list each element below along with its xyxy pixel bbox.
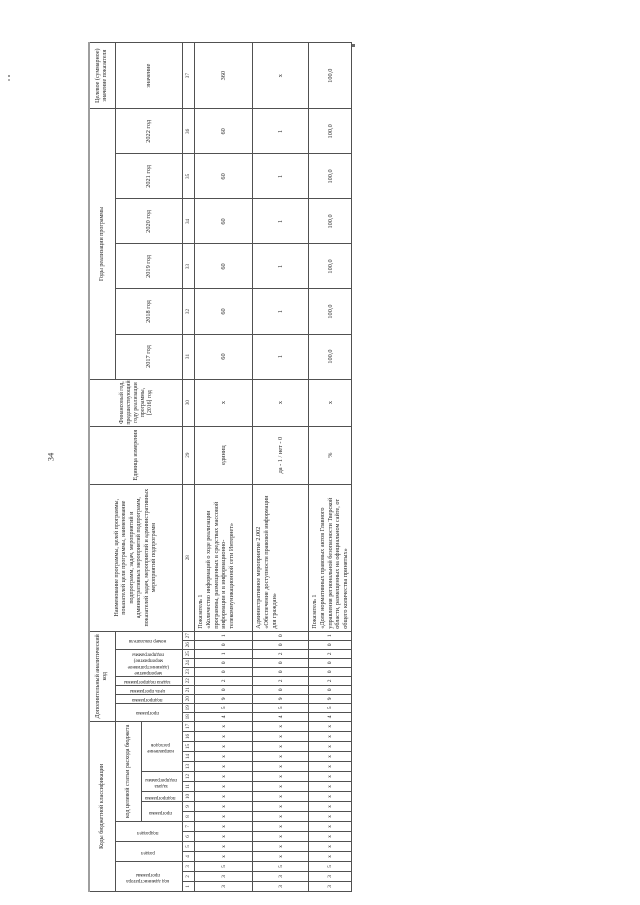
value-cell: х	[309, 742, 352, 752]
value-cell: х	[309, 721, 352, 731]
value-cell: 100,0	[309, 109, 352, 154]
header-label: Годы реализации программы	[99, 207, 105, 281]
header-ta-podprogramma: подпрограмма	[141, 792, 183, 802]
value-cell: х	[253, 852, 309, 862]
value-cell: х	[253, 812, 309, 822]
header-label: 2017 год	[145, 345, 152, 368]
column-number: 3	[183, 862, 195, 872]
value-cell: х	[195, 812, 253, 822]
value-cell: 2	[309, 676, 352, 685]
column-number: 11	[183, 782, 195, 792]
value-cell: х	[253, 379, 309, 426]
value-cell: %	[309, 426, 352, 484]
column-number: 36	[183, 109, 195, 154]
header-an-zadacha: задача подпрограммы	[115, 676, 183, 685]
value-cell: 5	[195, 703, 253, 712]
value-cell: х	[253, 802, 309, 812]
column-numbers-row: 1234567891011121314151617181920212223242…	[183, 43, 195, 892]
value-cell: 4	[309, 712, 352, 721]
column-number: 21	[183, 685, 195, 694]
column-number: 7	[183, 822, 195, 832]
column-number: 9	[183, 802, 195, 812]
value-cell: 0	[309, 640, 352, 649]
value-cell: 3	[309, 882, 352, 892]
value-cell: 360	[195, 43, 253, 109]
header-label: подпрограмма	[132, 696, 163, 702]
value-cell: 2	[195, 676, 253, 685]
value-cell: х	[309, 822, 352, 832]
column-number: 8	[183, 812, 195, 822]
header-base-year-column: Финансовый год, предшествующий году реал…	[89, 379, 183, 426]
column-number: 4	[183, 852, 195, 862]
value-cell: х	[309, 732, 352, 742]
header-an-programma: программа	[115, 703, 183, 721]
header-label: направление расходов	[142, 740, 180, 753]
table-header: Коды бюджетной классификации Дополнитель…	[89, 43, 183, 892]
column-number: 13	[183, 762, 195, 772]
value-cell: 1	[195, 631, 253, 640]
column-number: 5	[183, 842, 195, 852]
column-number: 23	[183, 667, 195, 676]
header-label: номер показателя	[129, 637, 166, 643]
value-cell: х	[309, 842, 352, 852]
table-row: 335хххххххххххххх4590200201Показатель 1 …	[309, 43, 352, 892]
value-cell: х	[253, 43, 309, 109]
header-label: Коды бюджетной классификации	[99, 764, 105, 849]
value-cell: 1	[253, 244, 309, 289]
value-cell: 0	[253, 685, 309, 694]
value-cell: 0	[253, 667, 309, 676]
value-cell: х	[253, 792, 309, 802]
column-number: 19	[183, 703, 195, 712]
value-cell: 100,0	[309, 199, 352, 244]
value-cell: 60	[195, 199, 253, 244]
header-label: Наименование программы, целей программы,…	[114, 489, 158, 627]
header-an-podprogramma: подпрограмма	[115, 694, 183, 703]
value-cell: 100,0	[309, 43, 352, 109]
column-number: 16	[183, 732, 195, 742]
value-cell: 0	[195, 640, 253, 649]
name-cell: Показатель 1 «Количество информаций о хо…	[195, 484, 253, 631]
value-cell: 0	[309, 658, 352, 667]
value-cell: х	[195, 842, 253, 852]
table-row: 335хххххххххххххх4590200101Показатель 1 …	[195, 43, 253, 892]
value-cell: единиц	[195, 426, 253, 484]
value-cell: х	[195, 782, 253, 792]
value-cell: 0	[195, 667, 253, 676]
value-cell: х	[195, 762, 253, 772]
value-cell: х	[309, 802, 352, 812]
value-cell: х	[253, 732, 309, 742]
value-cell: х	[195, 792, 253, 802]
value-cell: х	[253, 772, 309, 782]
header-label: Единица измерения	[133, 430, 139, 481]
value-cell: да - 1 / нет - 0	[253, 426, 309, 484]
value-cell: х	[195, 379, 253, 426]
header-ta-zadacha: задача подпрограммы	[141, 772, 183, 792]
header-label: код целевой статьи расхода бюджета	[125, 725, 131, 818]
value-cell: 2	[253, 676, 309, 685]
value-cell: 3	[253, 872, 309, 882]
value-cell: 0	[195, 658, 253, 667]
value-cell: 4	[195, 712, 253, 721]
value-cell: 0	[309, 667, 352, 676]
name-cell: Показатель 1 «Доля нормативных правовых …	[309, 484, 352, 631]
value-cell: х	[253, 721, 309, 731]
column-number: 31	[183, 334, 195, 379]
value-cell: 100,0	[309, 289, 352, 334]
document-page: { "page": { "number": "34" }, "table": {…	[0, 0, 640, 905]
value-cell: 100,0	[309, 334, 352, 379]
value-cell: х	[195, 732, 253, 742]
value-cell: х	[309, 812, 352, 822]
header-label: Целевое (суммарное) значение показателя	[95, 48, 108, 102]
column-number: 29	[183, 426, 195, 484]
value-cell: 1	[309, 631, 352, 640]
column-number: 10	[183, 792, 195, 802]
value-cell: х	[309, 762, 352, 772]
header-years-group: Годы реализации программы	[89, 109, 115, 379]
value-cell: 0	[253, 640, 309, 649]
column-number: 15	[183, 742, 195, 752]
value-cell: х	[253, 762, 309, 772]
header-label: 2019 год	[145, 255, 152, 278]
value-cell: х	[195, 822, 253, 832]
column-number: 26	[183, 640, 195, 649]
value-cell: 0	[195, 685, 253, 694]
column-number: 20	[183, 694, 195, 703]
header-year-2018: 2018 год	[115, 289, 183, 334]
value-cell: 1	[253, 109, 309, 154]
header-year-2019: 2019 год	[115, 244, 183, 289]
header-year-2020: 2020 год	[115, 199, 183, 244]
column-number: 17	[183, 721, 195, 731]
header-year-2022: 2022 год	[115, 109, 183, 154]
scan-artifact	[352, 44, 355, 47]
header-podrazdel: подраздел	[115, 822, 183, 842]
header-year-2017: 2017 год	[115, 334, 183, 379]
header-unit-column: Единица измерения	[89, 426, 183, 484]
value-cell: 5	[253, 862, 309, 872]
table-row: 335хххххххххххххх4590200200Административ…	[253, 43, 309, 892]
header-ta-napravlenie: направление расходов	[141, 721, 183, 771]
header-label: 2022 год	[145, 120, 152, 143]
header-label: задача подпрограммы	[124, 678, 170, 684]
header-target-article: код целевой статьи расхода бюджета	[115, 721, 141, 821]
value-cell: 100,0	[309, 154, 352, 199]
column-number: 37	[183, 43, 195, 109]
header-label: Финансовый год, предшествующий году реал…	[119, 380, 153, 424]
value-cell: 5	[309, 862, 352, 872]
header-label: код администратора программы	[117, 870, 179, 883]
value-cell: х	[309, 852, 352, 862]
header-label: значение	[145, 64, 152, 88]
value-cell: 0	[253, 658, 309, 667]
value-cell: х	[253, 742, 309, 752]
value-cell: х	[195, 802, 253, 812]
column-number: 18	[183, 712, 195, 721]
value-cell: х	[195, 742, 253, 752]
value-cell: 9	[195, 694, 253, 703]
value-cell: х	[253, 842, 309, 852]
header-name-column: Наименование программы, целей программы,…	[89, 484, 183, 631]
column-number: 27	[183, 631, 195, 640]
column-number: 34	[183, 199, 195, 244]
value-cell: 0	[253, 631, 309, 640]
value-cell: 9	[253, 694, 309, 703]
value-cell: 60	[195, 244, 253, 289]
column-number: 33	[183, 244, 195, 289]
value-cell: 5	[309, 703, 352, 712]
name-cell: Административное мероприятие 2.002 «Обес…	[253, 484, 309, 631]
value-cell: 1	[253, 154, 309, 199]
header-admin-code: код администратора программы	[115, 862, 183, 892]
column-number: 14	[183, 752, 195, 762]
value-cell: 1	[253, 199, 309, 244]
header-label: цель программы	[130, 687, 165, 693]
header-label: мероприятие (административное мероприяти…	[117, 650, 179, 675]
value-cell: х	[309, 379, 352, 426]
value-cell: 1	[253, 334, 309, 379]
header-row-sections: Коды бюджетной классификации Дополнитель…	[89, 43, 115, 892]
scan-artifact	[8, 79, 10, 81]
value-cell: 2	[253, 649, 309, 658]
column-number: 28	[183, 484, 195, 631]
value-cell: х	[253, 782, 309, 792]
value-cell: х	[309, 782, 352, 792]
value-cell: 3	[309, 872, 352, 882]
value-cell: 1	[253, 289, 309, 334]
header-label: 2021 год	[145, 165, 152, 188]
header-label: программа	[149, 808, 172, 814]
value-cell: 9	[309, 694, 352, 703]
header-label: Дополнительный аналитический код	[95, 634, 108, 718]
column-number: 30	[183, 379, 195, 426]
value-cell: 100,0	[309, 244, 352, 289]
header-label: подраздел	[137, 828, 158, 834]
value-cell: 3	[195, 872, 253, 882]
value-cell: х	[195, 852, 253, 862]
column-number: 1	[183, 882, 195, 892]
header-label: раздел	[141, 848, 155, 854]
header-target-znachenie: значение	[115, 43, 183, 109]
value-cell: 1	[195, 649, 253, 658]
value-cell: х	[309, 832, 352, 842]
value-cell: 60	[195, 109, 253, 154]
header-an-nomer: номер показателя	[115, 631, 183, 649]
header-label: 2018 год	[145, 300, 152, 323]
value-cell: 3	[253, 882, 309, 892]
value-cell: х	[195, 772, 253, 782]
column-number: 2	[183, 872, 195, 882]
value-cell: х	[195, 832, 253, 842]
header-label: 2020 год	[145, 210, 152, 233]
header-label: подпрограмма	[145, 793, 176, 799]
column-number: 24	[183, 658, 195, 667]
value-cell: 60	[195, 289, 253, 334]
header-year-2021: 2021 год	[115, 154, 183, 199]
value-cell: х	[253, 822, 309, 832]
rotated-sheet: Коды бюджетной классификации Дополнитель…	[88, 40, 352, 892]
value-cell: 2	[309, 649, 352, 658]
header-label: программа	[136, 709, 159, 715]
header-target-value: Целевое (суммарное) значение показателя	[89, 43, 115, 109]
header-an-meropriyatie: мероприятие (административное мероприяти…	[115, 649, 183, 676]
value-cell: 3	[195, 882, 253, 892]
value-cell: х	[195, 721, 253, 731]
value-cell: х	[309, 772, 352, 782]
page-number: 34	[45, 453, 55, 462]
value-cell: 5	[195, 862, 253, 872]
header-label: задача подпрограммы	[142, 775, 180, 788]
header-ta-programma: программа	[141, 802, 183, 822]
value-cell: х	[309, 752, 352, 762]
header-razdel: раздел	[115, 842, 183, 862]
value-cell: 4	[253, 712, 309, 721]
header-budget-codes: Коды бюджетной классификации	[89, 721, 115, 891]
value-cell: х	[253, 752, 309, 762]
column-number: 22	[183, 676, 195, 685]
table-body: 1234567891011121314151617181920212223242…	[183, 43, 352, 892]
value-cell: х	[309, 792, 352, 802]
column-number: 32	[183, 289, 195, 334]
program-indicators-table: Коды бюджетной классификации Дополнитель…	[88, 42, 352, 892]
value-cell: 60	[195, 334, 253, 379]
header-an-tsel: цель программы	[115, 685, 183, 694]
column-number: 6	[183, 832, 195, 842]
column-number: 35	[183, 154, 195, 199]
value-cell: 0	[309, 685, 352, 694]
value-cell: 5	[253, 703, 309, 712]
value-cell: х	[253, 832, 309, 842]
value-cell: х	[195, 752, 253, 762]
scan-artifact	[8, 75, 10, 77]
column-number: 12	[183, 772, 195, 782]
header-analytic-code: Дополнительный аналитический код	[89, 631, 115, 721]
value-cell: 60	[195, 154, 253, 199]
column-number: 25	[183, 649, 195, 658]
